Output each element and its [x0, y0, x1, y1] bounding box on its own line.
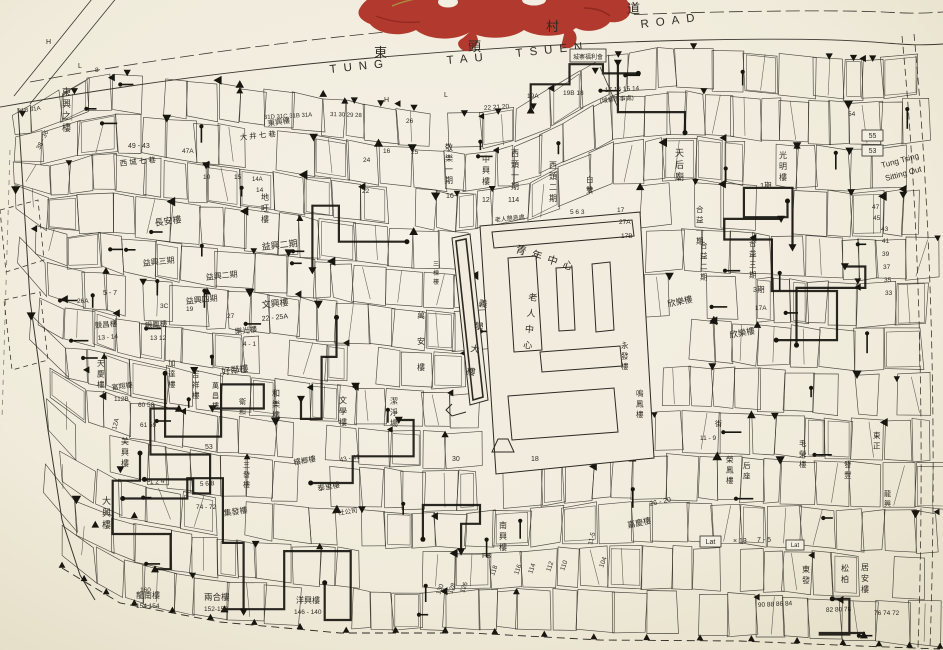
- map-label: 大興樓: [102, 495, 111, 530]
- map-label: 文學樓: [339, 395, 347, 427]
- plot-number: 18: [531, 456, 539, 463]
- plot-number: 47A: [182, 148, 194, 155]
- plot-number: 14: [256, 187, 264, 194]
- map-label: 永發樓: [621, 340, 629, 371]
- map-label: 街: [715, 419, 722, 428]
- boxed-label: Lat: [706, 539, 716, 546]
- walled-city-survey-map: 東頭村道TUNGTAUTSUENROAD 東興之樓長安樓地旺樓益興二期益興三期益…: [0, 0, 943, 650]
- plot-number: 17B: [621, 233, 633, 240]
- plot-number: 17A: [755, 305, 767, 312]
- map-label: 洋興樓: [296, 595, 320, 605]
- plot-number: 4 - 1: [243, 341, 256, 348]
- plot-number: × 13: [733, 538, 747, 545]
- map-label: 1期: [760, 181, 772, 190]
- plot-number: 16: [383, 148, 391, 155]
- plot-number: 154 154: [136, 603, 160, 610]
- map-label: 萬安樓: [417, 310, 425, 372]
- map-label: 地旺樓: [261, 192, 269, 224]
- plot-number: 5 - 7: [103, 290, 117, 297]
- boxed-label: 55: [869, 133, 877, 140]
- plot-number: 12: [482, 197, 490, 204]
- map-label: 加達樓: [168, 358, 176, 389]
- map-label: 南興樓: [499, 520, 507, 552]
- plot-number: 14A: [252, 177, 263, 183]
- plot-number: 26: [406, 118, 414, 125]
- boxed-label: Lat: [791, 543, 800, 549]
- map-label: 鳴鳳樓: [636, 388, 644, 419]
- plot-number: 35: [884, 277, 892, 284]
- map-label: 和樂樓: [272, 389, 280, 420]
- plot-number: 25: [411, 149, 419, 156]
- map-label: 兩合樓: [204, 592, 230, 602]
- map-label: 發豐: [844, 460, 852, 480]
- plot-number: 5 6 8: [200, 480, 215, 488]
- plot-number: 27: [227, 313, 235, 320]
- plot-number: 24: [363, 157, 371, 164]
- map-label: 天后廟: [675, 148, 684, 182]
- boxed-label: 53: [869, 148, 877, 155]
- plot-number: 13 12: [150, 335, 167, 342]
- plot-number: 33: [885, 290, 893, 297]
- plot-number: 37: [883, 264, 891, 271]
- plot-number: 41: [882, 238, 890, 245]
- plot-number: 152-150: [204, 606, 228, 613]
- map-label: 銀鳳樓: [144, 318, 168, 330]
- plot-number: 19A: [527, 93, 539, 100]
- map-label: L: [78, 63, 82, 70]
- map-label: 三棟樓: [433, 261, 439, 286]
- plot-number: 160: [140, 587, 151, 594]
- plot-number: 16: [446, 193, 454, 200]
- plot-number: 11 - 9: [700, 435, 717, 442]
- map-label: 3期: [753, 285, 765, 294]
- plot-number: 15: [234, 174, 242, 181]
- plot-number: 74 - 72: [196, 504, 217, 511]
- plot-number: 45: [873, 215, 881, 222]
- plot-number: 82 80 78: [826, 606, 852, 614]
- plot-number: 76 74 72: [874, 610, 900, 617]
- plot-number: 61 59: [140, 422, 157, 429]
- plot-number: 30: [452, 456, 460, 463]
- plot-number: 112B: [114, 396, 129, 403]
- map-label: 萬昌樓: [212, 381, 219, 410]
- plot-number: 22: [362, 188, 370, 195]
- map-label: 三發樓: [243, 461, 250, 489]
- map-label: 競昌樓: [94, 318, 118, 330]
- map-label: H: [384, 97, 389, 104]
- map-label: 吉祥樓: [192, 370, 200, 400]
- plot-number: FB: [482, 553, 491, 560]
- plot-number: 49 - 43: [128, 143, 150, 150]
- plot-number: 39: [882, 251, 890, 258]
- map-label: 美興樓: [121, 436, 129, 468]
- map-label: 潔淨場: [390, 397, 398, 428]
- boxed-label: 城寨福利會: [573, 53, 603, 61]
- plot-number: 3C: [160, 303, 169, 310]
- plot-number: 54: [848, 111, 856, 118]
- map-label: H: [46, 39, 51, 46]
- plot-number: 53: [205, 444, 213, 451]
- plot-number: 1 2 4: [150, 478, 165, 486]
- plot-number: 26A: [77, 298, 89, 305]
- plot-number: 27A: [619, 219, 631, 226]
- plot-number: 8: [95, 67, 99, 74]
- plot-number: 47: [872, 204, 880, 211]
- plot-number: 31 30 29 28: [330, 112, 363, 119]
- plot-number: 17: [617, 207, 625, 214]
- map-canvas: 東頭村道TUNGTAUTSUENROAD 東興之樓長安樓地旺樓益興二期益興三期益…: [0, 0, 943, 650]
- plot-number: 19: [186, 306, 194, 313]
- map-label: L: [444, 92, 448, 99]
- map-label: 中興樓: [482, 154, 490, 186]
- plot-number: 10: [203, 174, 211, 181]
- map-label: 榮鳳樓: [726, 454, 734, 485]
- plot-number: 146 - 140: [294, 609, 322, 616]
- map-label: 天慶樓: [97, 359, 105, 389]
- plot-number: 5 6 3: [570, 209, 585, 216]
- map-label: 光明樓: [779, 150, 787, 182]
- plot-number: 19B 18: [563, 90, 584, 97]
- road-name-char: 村: [546, 19, 559, 34]
- map-label: 居安樓: [861, 563, 869, 594]
- plot-number: 7 - 5: [757, 537, 771, 544]
- plot-number: 114: [508, 197, 519, 204]
- plot-number: 60 58: [138, 402, 155, 409]
- plot-number: 43: [881, 226, 889, 233]
- map-label: 毛榮樓: [799, 438, 807, 469]
- road-name-char: 道: [627, 1, 640, 16]
